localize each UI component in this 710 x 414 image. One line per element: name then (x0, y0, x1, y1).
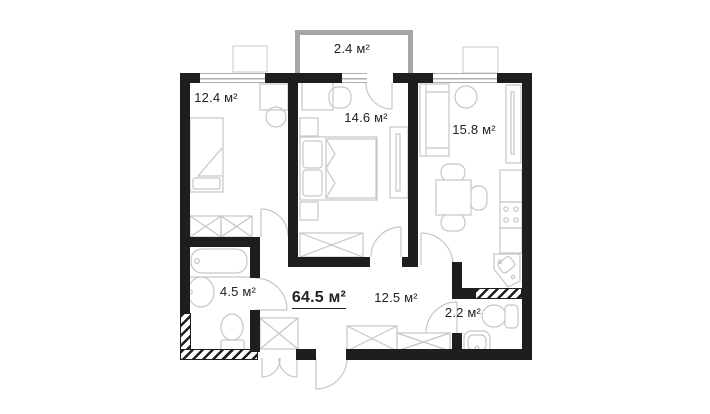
dining-chair (470, 186, 487, 210)
wall-bathroom-top (180, 237, 260, 247)
dining-chair (441, 214, 465, 231)
wall-bedroom-2-bottom (288, 257, 370, 267)
window-kitchen (433, 73, 497, 83)
blanket (326, 139, 376, 198)
chair (329, 87, 351, 108)
entrance-door (316, 358, 347, 389)
window-bedroom-2 (342, 73, 367, 83)
kitchen-door (421, 233, 453, 265)
floor-lamp (455, 86, 477, 108)
hallway-area-label: 12.5 м² (346, 290, 446, 305)
desk (302, 82, 333, 110)
wall-bedrooms-divider (288, 73, 298, 267)
wall-hatched-left (180, 313, 191, 350)
bedroom-2-door (371, 227, 401, 257)
pillow (303, 141, 322, 168)
balcony-door (366, 83, 392, 109)
balcony-area-label: 2.4 м² (312, 41, 392, 56)
toilet-bowl (221, 314, 243, 340)
balcony-wall-top (295, 30, 413, 35)
pillow (303, 170, 322, 196)
wall-bedroom-2-bottom (402, 257, 418, 267)
toilet-tank (505, 305, 518, 328)
ac-unit (463, 47, 498, 73)
kitchen-cabinet (500, 228, 522, 253)
sofa (420, 84, 449, 156)
wall-wc-top (452, 288, 475, 299)
wc-area-label: 2.2 м² (433, 305, 493, 320)
wall-bathroom-right (250, 310, 260, 352)
tub-faucet (195, 259, 200, 264)
wall-wc-top-hatched (475, 288, 522, 299)
closet-door-right (279, 358, 297, 377)
hallway-furniture (260, 318, 450, 351)
wall-kitchen-stub (452, 262, 462, 288)
kitchen-cabinet (500, 170, 522, 202)
wall-outer-left (180, 73, 190, 313)
stove (500, 202, 522, 228)
ac-unit (233, 46, 267, 72)
blanket-fold (326, 139, 335, 198)
nightstand (300, 202, 318, 220)
bedroom-1-door (261, 209, 288, 237)
blanket-fold (198, 148, 222, 176)
wall-bottom-segment (346, 349, 532, 360)
wall-top-segment (265, 73, 342, 83)
bedroom-1-area-label: 12.4 м² (166, 90, 266, 105)
pillow (193, 178, 220, 189)
bedroom-2-area-label: 14.6 м² (316, 110, 416, 125)
kitchen-area-label: 15.8 м² (424, 122, 524, 137)
wall-hatched-bottom (180, 349, 258, 360)
tall-wardrobe (390, 127, 408, 198)
floor-plan: 2.4 м² 12.4 м² 14.6 м² 15.8 м² 4.5 м² 64… (0, 0, 710, 414)
dining-chair (441, 164, 465, 181)
wall-outer-right (522, 73, 532, 360)
closet-door-left (262, 358, 280, 377)
bed-single (190, 118, 223, 192)
corner-sink (494, 254, 520, 287)
wall-bathroom-right (250, 237, 260, 278)
kitchen-living-furniture (420, 47, 522, 287)
wall-wc-left (452, 333, 462, 360)
balcony-wall-right (408, 30, 413, 75)
bathtub (186, 245, 252, 277)
balcony-wall-left (295, 30, 300, 75)
dining-table (436, 180, 471, 215)
wall-bottom-segment (296, 349, 316, 360)
wall-kitchen-divider (408, 73, 418, 265)
window-bedroom-1 (200, 73, 265, 83)
